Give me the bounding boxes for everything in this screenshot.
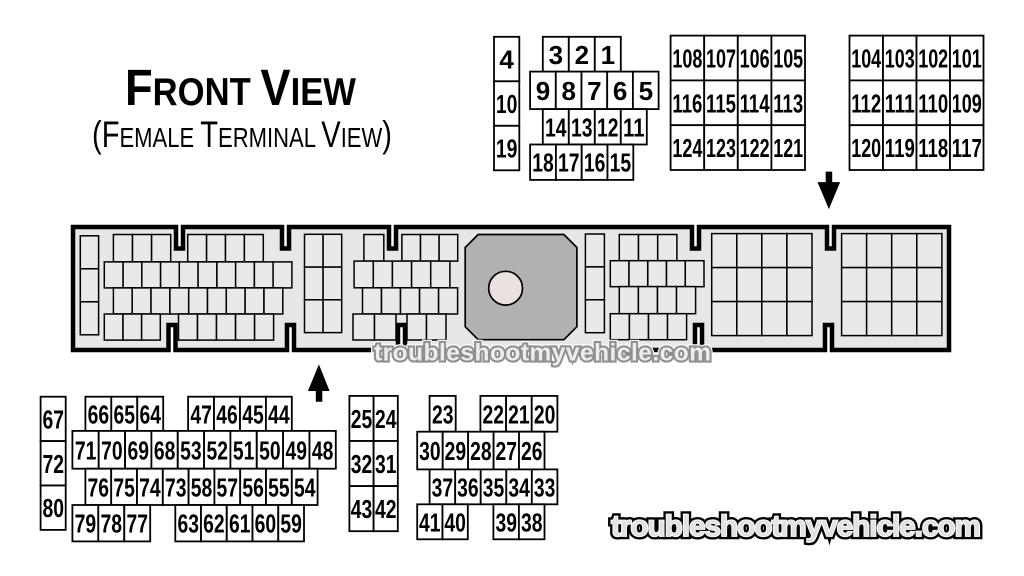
svg-text:30: 30 <box>419 436 441 466</box>
svg-text:10: 10 <box>496 89 518 119</box>
svg-text:76: 76 <box>88 472 110 502</box>
svg-text:75: 75 <box>113 472 135 502</box>
svg-text:21: 21 <box>508 399 530 429</box>
svg-text:111: 111 <box>885 88 915 118</box>
svg-text:22: 22 <box>482 399 504 429</box>
svg-text:troubleshootmyvehicle.com: troubleshootmyvehicle.com <box>611 510 981 543</box>
svg-text:104: 104 <box>851 44 881 74</box>
svg-text:71: 71 <box>75 435 97 465</box>
svg-text:38: 38 <box>521 507 543 537</box>
svg-text:39: 39 <box>495 507 517 537</box>
svg-text:79: 79 <box>75 509 97 539</box>
svg-text:24: 24 <box>375 404 397 434</box>
svg-text:26: 26 <box>521 436 543 466</box>
svg-text:59: 59 <box>280 509 302 539</box>
svg-text:122: 122 <box>740 133 770 163</box>
svg-text:25: 25 <box>351 404 373 434</box>
svg-text:67: 67 <box>42 404 64 434</box>
svg-text:35: 35 <box>483 472 505 502</box>
svg-text:44: 44 <box>268 399 290 429</box>
svg-text:52: 52 <box>207 435 229 465</box>
svg-text:74: 74 <box>139 472 161 502</box>
svg-text:(FEMALE TERMINAL VIEW): (FEMALE TERMINAL VIEW) <box>92 114 392 155</box>
svg-text:55: 55 <box>268 472 290 502</box>
svg-text:69: 69 <box>127 435 149 465</box>
svg-text:65: 65 <box>114 399 136 429</box>
svg-text:20: 20 <box>534 399 556 429</box>
svg-text:61: 61 <box>229 509 251 539</box>
svg-text:47: 47 <box>190 399 212 429</box>
svg-text:105: 105 <box>773 44 803 74</box>
svg-text:123: 123 <box>706 133 736 163</box>
svg-text:116: 116 <box>672 88 702 118</box>
svg-text:124: 124 <box>672 133 702 163</box>
svg-text:48: 48 <box>312 435 334 465</box>
svg-text:56: 56 <box>242 472 264 502</box>
svg-text:107: 107 <box>706 44 736 74</box>
svg-text:63: 63 <box>177 509 199 539</box>
svg-text:112: 112 <box>851 88 881 118</box>
svg-text:27: 27 <box>496 436 518 466</box>
svg-text:FRONT VIEW: FRONT VIEW <box>125 59 356 116</box>
svg-text:117: 117 <box>952 133 982 163</box>
svg-text:45: 45 <box>242 399 264 429</box>
svg-text:77: 77 <box>126 509 148 539</box>
svg-text:13: 13 <box>571 112 593 142</box>
svg-text:103: 103 <box>885 44 915 74</box>
svg-text:7: 7 <box>587 76 601 106</box>
svg-text:2: 2 <box>575 40 589 70</box>
svg-text:53: 53 <box>180 435 202 465</box>
svg-text:11: 11 <box>623 112 645 142</box>
svg-text:62: 62 <box>203 509 225 539</box>
svg-text:102: 102 <box>918 44 948 74</box>
svg-text:15: 15 <box>610 148 632 178</box>
svg-text:40: 40 <box>444 507 466 537</box>
svg-text:115: 115 <box>706 88 736 118</box>
svg-text:8: 8 <box>561 76 575 106</box>
svg-text:12: 12 <box>597 112 619 142</box>
svg-text:37: 37 <box>432 472 454 502</box>
svg-text:119: 119 <box>885 133 915 163</box>
svg-text:17: 17 <box>558 148 580 178</box>
svg-text:4: 4 <box>499 45 514 75</box>
svg-text:41: 41 <box>419 507 441 537</box>
svg-text:6: 6 <box>613 76 627 106</box>
svg-text:3: 3 <box>549 40 563 70</box>
svg-text:106: 106 <box>740 44 770 74</box>
svg-text:49: 49 <box>286 435 308 465</box>
svg-text:109: 109 <box>952 88 982 118</box>
svg-text:73: 73 <box>165 472 187 502</box>
svg-text:19: 19 <box>496 134 518 164</box>
svg-text:120: 120 <box>851 133 881 163</box>
svg-text:31: 31 <box>375 449 397 479</box>
svg-text:110: 110 <box>918 88 948 118</box>
svg-text:54: 54 <box>294 472 316 502</box>
svg-text:78: 78 <box>101 509 123 539</box>
svg-text:32: 32 <box>351 449 373 479</box>
svg-text:troubleshootmyvehicle.com: troubleshootmyvehicle.com <box>374 340 711 367</box>
svg-text:36: 36 <box>457 472 479 502</box>
svg-text:28: 28 <box>470 436 492 466</box>
svg-text:70: 70 <box>101 435 123 465</box>
svg-text:5: 5 <box>639 76 653 106</box>
svg-text:33: 33 <box>534 472 556 502</box>
svg-text:42: 42 <box>375 494 397 524</box>
svg-text:80: 80 <box>42 493 64 523</box>
svg-text:16: 16 <box>584 148 606 178</box>
svg-text:114: 114 <box>740 88 770 118</box>
svg-text:58: 58 <box>191 472 213 502</box>
svg-text:118: 118 <box>918 133 948 163</box>
svg-text:72: 72 <box>42 449 64 479</box>
svg-text:68: 68 <box>154 435 176 465</box>
svg-text:29: 29 <box>445 436 467 466</box>
svg-text:57: 57 <box>217 472 239 502</box>
svg-text:60: 60 <box>255 509 277 539</box>
svg-text:64: 64 <box>139 399 161 429</box>
svg-text:66: 66 <box>88 399 110 429</box>
svg-text:113: 113 <box>773 88 803 118</box>
svg-text:51: 51 <box>233 435 255 465</box>
svg-text:108: 108 <box>672 44 702 74</box>
svg-text:43: 43 <box>351 494 373 524</box>
svg-text:1: 1 <box>601 40 615 70</box>
svg-text:121: 121 <box>773 133 803 163</box>
svg-text:101: 101 <box>952 44 982 74</box>
svg-text:23: 23 <box>432 399 454 429</box>
svg-text:9: 9 <box>536 76 550 106</box>
svg-text:34: 34 <box>508 472 530 502</box>
svg-text:14: 14 <box>545 112 567 142</box>
svg-text:50: 50 <box>259 435 281 465</box>
svg-text:46: 46 <box>216 399 238 429</box>
svg-text:18: 18 <box>532 148 554 178</box>
